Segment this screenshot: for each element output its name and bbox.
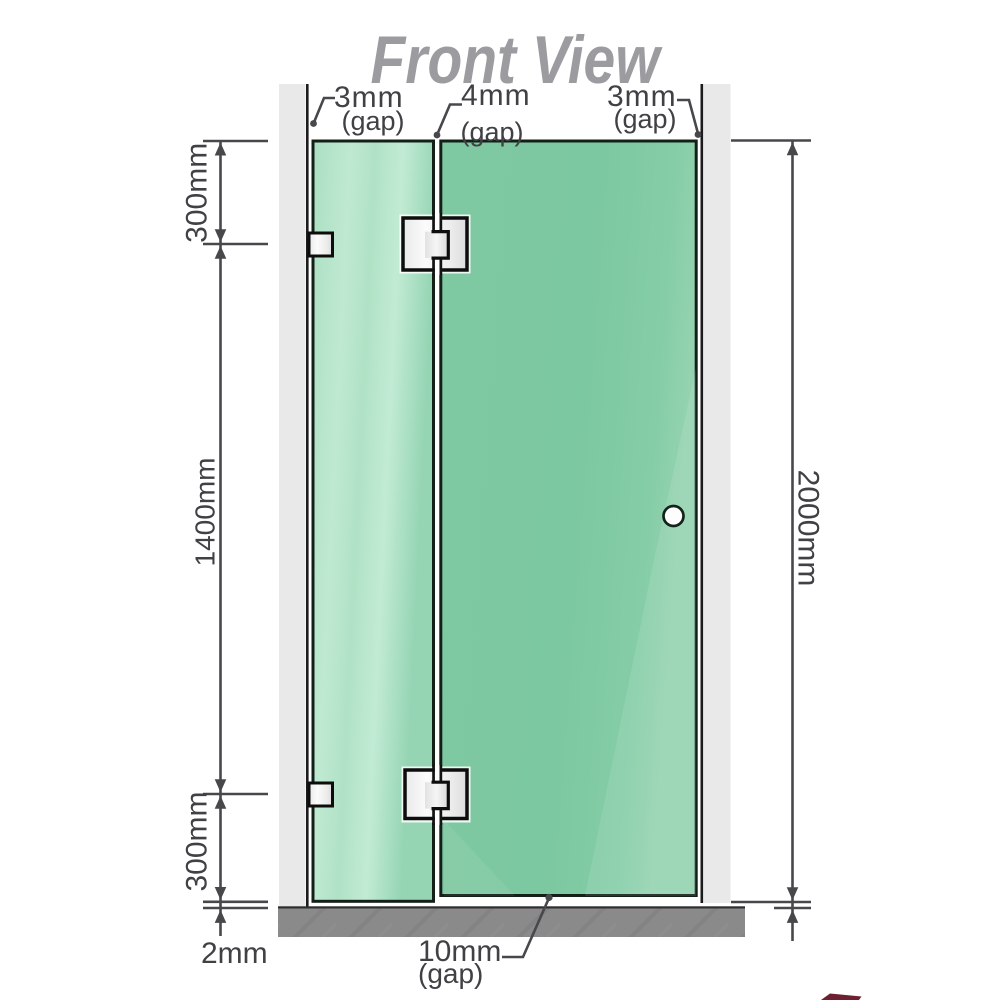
svg-text:4mm: 4mm [461, 79, 531, 112]
svg-text:300mm: 300mm [181, 143, 214, 243]
svg-text:(gap): (gap) [418, 958, 483, 989]
svg-text:1400mm: 1400mm [190, 458, 221, 567]
svg-text:2000mm: 2000mm [792, 470, 825, 587]
svg-text:(gap): (gap) [460, 117, 523, 147]
svg-text:(gap): (gap) [613, 104, 676, 134]
svg-text:300mm: 300mm [181, 791, 214, 891]
svg-text:(gap): (gap) [341, 106, 404, 136]
svg-text:2mm: 2mm [201, 937, 268, 970]
